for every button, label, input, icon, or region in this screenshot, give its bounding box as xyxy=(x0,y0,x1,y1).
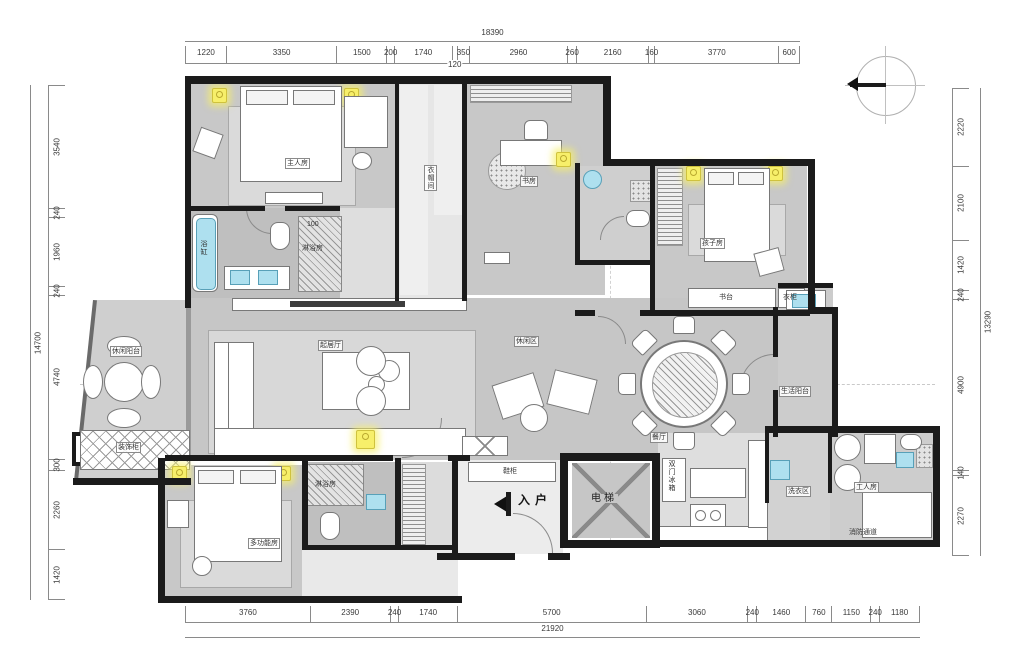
wall xyxy=(575,310,595,316)
wall xyxy=(185,76,191,308)
dim-label: 350 xyxy=(457,48,470,57)
dim-label: 1500 xyxy=(353,48,371,57)
wardrobe-shelving xyxy=(402,464,426,546)
wall xyxy=(437,553,515,560)
dim-label: 2270 xyxy=(957,507,966,525)
wall xyxy=(765,433,769,503)
dim-label: 1420 xyxy=(53,566,62,584)
barrel-chair xyxy=(356,346,386,376)
room-label-entry: 入户 xyxy=(517,496,553,505)
dim-label: 1220 xyxy=(197,48,215,57)
staff-counter xyxy=(864,434,896,464)
dim-label: 1960 xyxy=(53,243,62,261)
elevator-wall xyxy=(560,540,660,548)
dining-chair xyxy=(732,373,750,395)
dim-label: 13290 xyxy=(984,311,993,333)
wall xyxy=(452,458,458,555)
wall xyxy=(575,163,580,263)
dim-chain-left: 35402401960240474030022601420 xyxy=(48,85,65,600)
wall xyxy=(773,307,778,357)
wall xyxy=(773,390,778,437)
room-label-living: 起居厅 xyxy=(318,340,343,351)
dim-label: 4900 xyxy=(957,376,966,394)
dining-chair xyxy=(673,432,695,450)
label-dim-100: 100 xyxy=(306,220,320,229)
wall xyxy=(462,83,467,301)
dim-label: 600 xyxy=(783,48,796,57)
burner xyxy=(710,510,721,521)
pillow xyxy=(198,470,234,484)
toilet xyxy=(626,210,650,227)
room-label-staff: 工人房 xyxy=(854,482,879,493)
elevator-wall xyxy=(560,453,660,461)
room-label-study: 书房 xyxy=(520,176,538,187)
shower-area xyxy=(298,216,342,292)
dim-label: 3060 xyxy=(688,608,706,617)
sink xyxy=(366,494,386,510)
vanity-stool xyxy=(352,152,372,170)
dim-total-right: 13290 xyxy=(980,88,995,556)
pillow xyxy=(293,90,335,105)
dim-label: 3760 xyxy=(239,608,257,617)
balcony-chair xyxy=(83,365,103,399)
wall xyxy=(650,540,940,547)
wall xyxy=(808,159,815,314)
ottoman xyxy=(520,404,548,432)
dim-label: 1150 xyxy=(843,608,860,617)
dim-label: 2160 xyxy=(604,48,622,57)
pillow xyxy=(708,172,734,185)
wall xyxy=(650,163,655,313)
armchair xyxy=(167,500,189,528)
study-cabinet xyxy=(470,85,572,103)
room-label-master: 主人房 xyxy=(285,158,310,169)
wall xyxy=(302,545,458,550)
stool xyxy=(192,556,212,576)
dim-chain-top: 1220335015002001740120350296026021601603… xyxy=(185,46,800,64)
dim-total-top: 18390 xyxy=(185,28,800,42)
room-label-closet: 衣帽间 xyxy=(424,165,437,191)
sofa-seat xyxy=(214,428,466,456)
dim-label: 1460 xyxy=(772,608,790,617)
toilet xyxy=(270,222,290,250)
pillow xyxy=(246,90,288,105)
wall xyxy=(640,310,810,316)
balcony-chair xyxy=(141,365,161,399)
label-shoe-cabinet: 鞋柜 xyxy=(502,467,518,476)
label-decor-cabinet: 装饰柜 xyxy=(116,442,141,453)
balcony-chair xyxy=(107,408,141,428)
wall xyxy=(765,426,940,433)
tiled-corridor-floor xyxy=(302,550,458,596)
kids-wardrobe-shelving xyxy=(657,168,683,246)
dining-chair xyxy=(618,373,636,395)
dim-label: 2260 xyxy=(53,501,62,519)
dim-label: 1740 xyxy=(419,608,437,617)
round-sink xyxy=(583,170,602,189)
dining-table-top xyxy=(652,352,718,418)
floor-plan: 主人房 衣帽间 书房 孩子房 书台 衣柜 起居厅 休闲区 餐厅 休闲阳台 装饰柜… xyxy=(0,0,1016,668)
lamp-icon xyxy=(768,166,783,181)
dim-label: 2220 xyxy=(957,119,966,137)
bath-cabinet-floor xyxy=(340,208,398,298)
wall xyxy=(778,283,833,288)
wall xyxy=(575,260,655,265)
dim-label: 3350 xyxy=(273,48,291,57)
wall xyxy=(603,159,815,166)
dim-label: 2100 xyxy=(957,194,966,212)
dim-label: 1420 xyxy=(957,256,966,274)
closet-shelving xyxy=(434,85,462,215)
label-shower-mf: 淋浴房 xyxy=(314,480,337,489)
dining-chair xyxy=(673,316,695,334)
bed-bench xyxy=(265,192,323,204)
wall xyxy=(603,76,611,166)
dim-chain-right: 22202100142024049001402270 xyxy=(952,88,969,556)
sofa-seat xyxy=(228,342,254,434)
wall xyxy=(395,458,401,550)
balcony-table xyxy=(104,362,144,402)
wall xyxy=(285,206,340,211)
elevator-wall xyxy=(560,453,568,548)
dim-label: 760 xyxy=(812,608,825,617)
dim-chain-bottom: 3760239024017405700306024014607601150240… xyxy=(185,606,920,623)
pillow xyxy=(240,470,276,484)
room-label-lounge: 休闲区 xyxy=(514,336,539,347)
wall xyxy=(395,83,399,301)
barrel-chair xyxy=(356,386,386,416)
wall xyxy=(73,478,191,485)
room-label-elevator: 电梯 xyxy=(590,494,618,503)
lamp-icon xyxy=(356,430,375,449)
dim-label: 300 xyxy=(53,458,62,471)
dim-label: 5700 xyxy=(543,608,561,617)
label-fridge: 双门冰箱 xyxy=(666,460,677,492)
entry-arrow-icon xyxy=(486,496,507,512)
tv xyxy=(290,301,405,307)
wall xyxy=(165,455,393,461)
room-label-leisure-balcony: 休闲阳台 xyxy=(110,346,142,357)
dim-label: 1180 xyxy=(891,608,908,617)
dim-total-bottom: 21920 xyxy=(185,624,920,638)
sink xyxy=(896,452,914,468)
dim-label: 14700 xyxy=(34,331,43,353)
room-label-service-balcony: 生活阳台 xyxy=(779,386,811,397)
elevator-wall xyxy=(652,453,660,548)
study-desk xyxy=(500,140,562,166)
toilet xyxy=(320,512,340,540)
dim-label: 2960 xyxy=(510,48,528,57)
dim-label: 2390 xyxy=(341,608,359,617)
wall xyxy=(832,307,838,437)
lamp-icon xyxy=(686,166,701,181)
dim-label: 4740 xyxy=(53,369,62,387)
wall xyxy=(548,553,570,560)
pillow xyxy=(738,172,764,185)
sink xyxy=(230,270,250,285)
shower-area xyxy=(630,180,652,202)
room-label-multi: 多功能房 xyxy=(248,538,280,549)
burner xyxy=(695,510,706,521)
vanity-desk xyxy=(344,96,388,148)
wall xyxy=(828,433,832,493)
room-label-kids: 孩子房 xyxy=(700,238,725,249)
dim-label: 3540 xyxy=(53,138,62,156)
wall xyxy=(185,206,265,211)
desk-chair xyxy=(524,120,548,140)
compass-arrow-head xyxy=(840,77,858,91)
label-kids-wardrobe: 衣柜 xyxy=(782,293,798,302)
wall xyxy=(933,426,940,547)
wall xyxy=(158,596,462,603)
label-bathtub: 浴缸 xyxy=(198,240,209,256)
dim-label: 18390 xyxy=(481,28,503,37)
corridor-cabinet xyxy=(462,436,508,456)
sink xyxy=(258,270,278,285)
console-table xyxy=(484,252,510,264)
room-label-laundry: 洗衣区 xyxy=(786,486,811,497)
label-fire-corridor: 消防通道 xyxy=(848,528,878,537)
entry-arrow-bar xyxy=(506,492,511,516)
lamp-icon xyxy=(212,88,227,103)
label-shower-master: 淋浴房 xyxy=(301,244,324,253)
dim-label: 3770 xyxy=(708,48,726,57)
dim-total-left: 14700 xyxy=(30,85,45,600)
dim-label: 1740 xyxy=(414,48,432,57)
room-label-dining: 餐厅 xyxy=(650,432,668,443)
dim-label: 21920 xyxy=(541,624,563,633)
label-kids-desk: 书台 xyxy=(718,293,734,302)
laundry-sink xyxy=(770,460,790,480)
wall xyxy=(302,458,308,548)
toilet xyxy=(900,434,922,450)
kitchen-island xyxy=(690,468,746,498)
washing-machine xyxy=(834,434,861,461)
lamp-icon xyxy=(556,152,571,167)
